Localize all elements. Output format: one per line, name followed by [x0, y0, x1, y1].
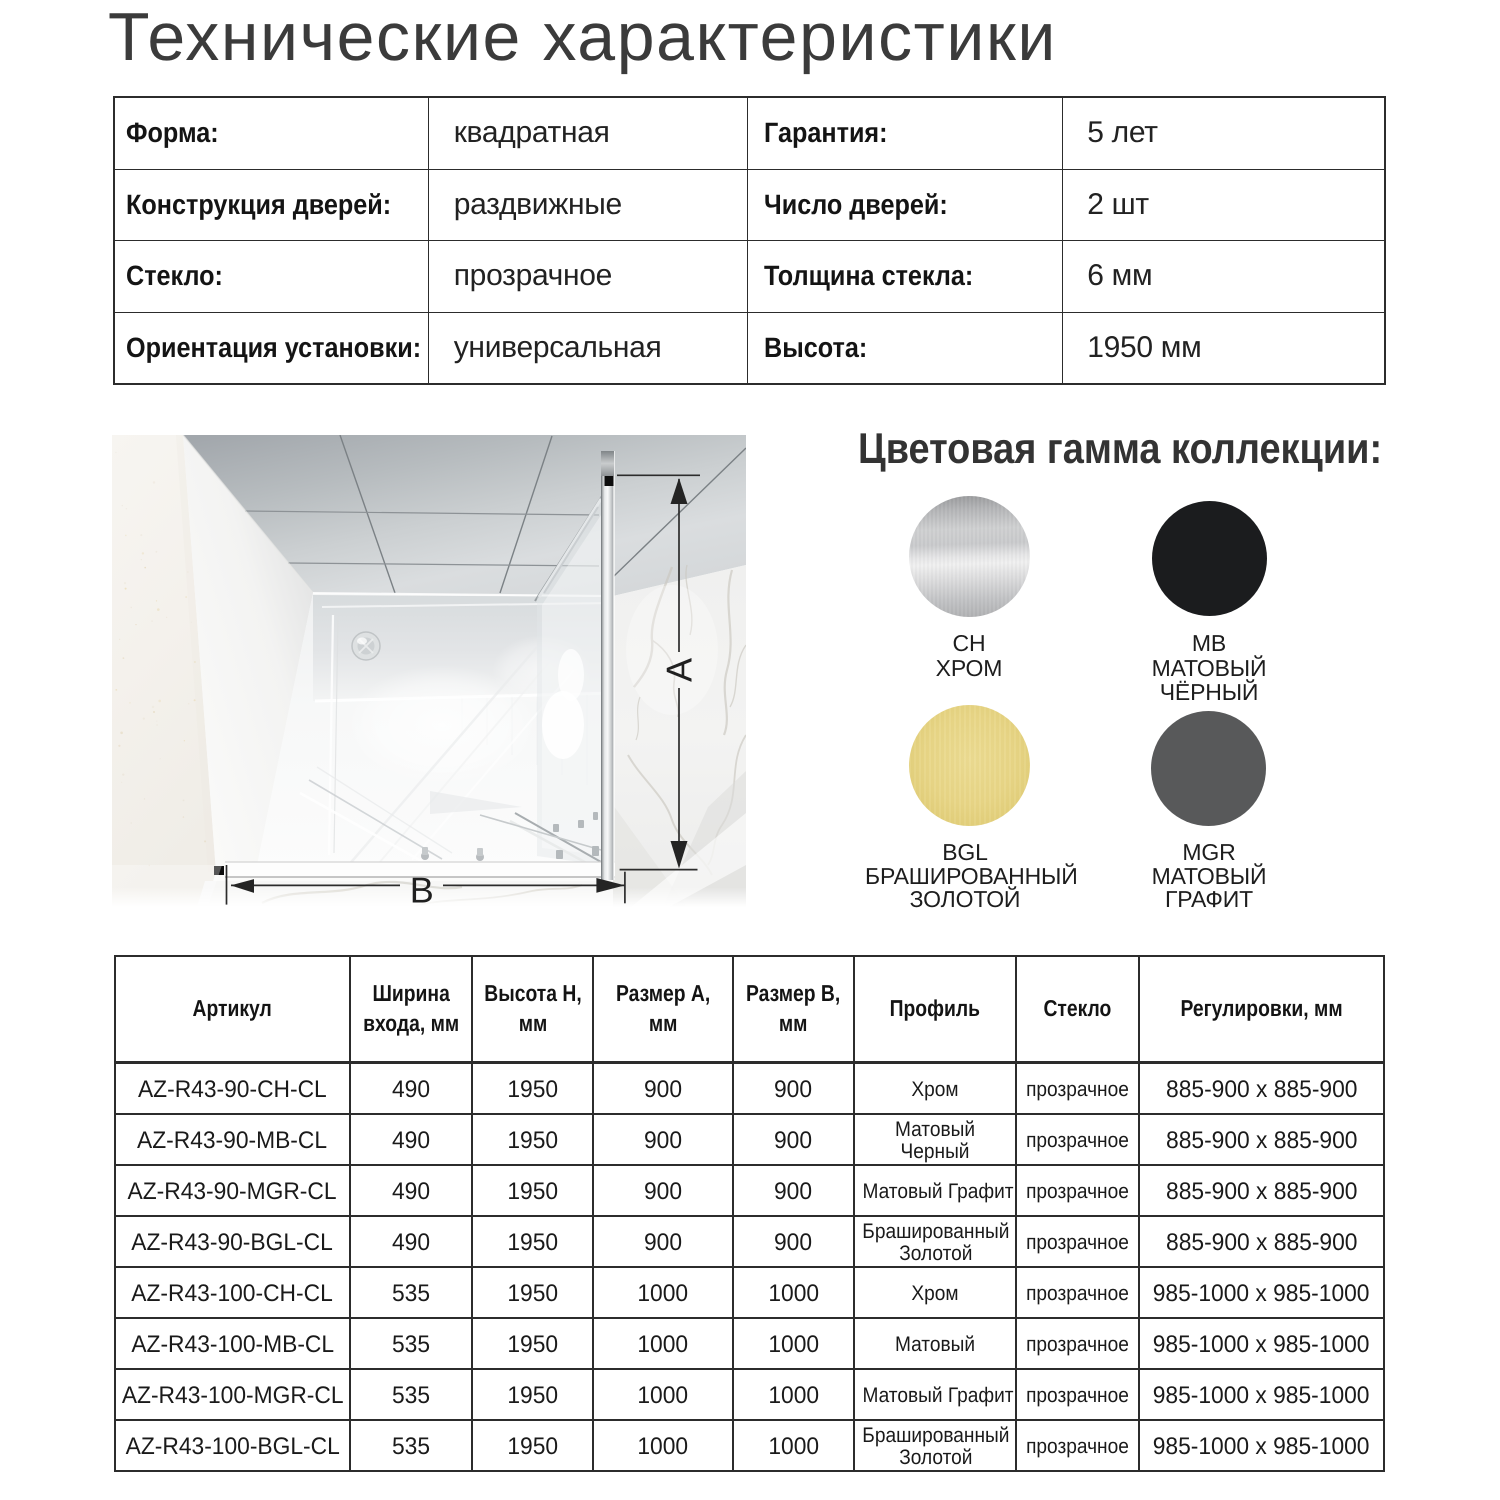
svg-text:А: А [659, 658, 700, 682]
svg-text:В: В [410, 870, 434, 907]
